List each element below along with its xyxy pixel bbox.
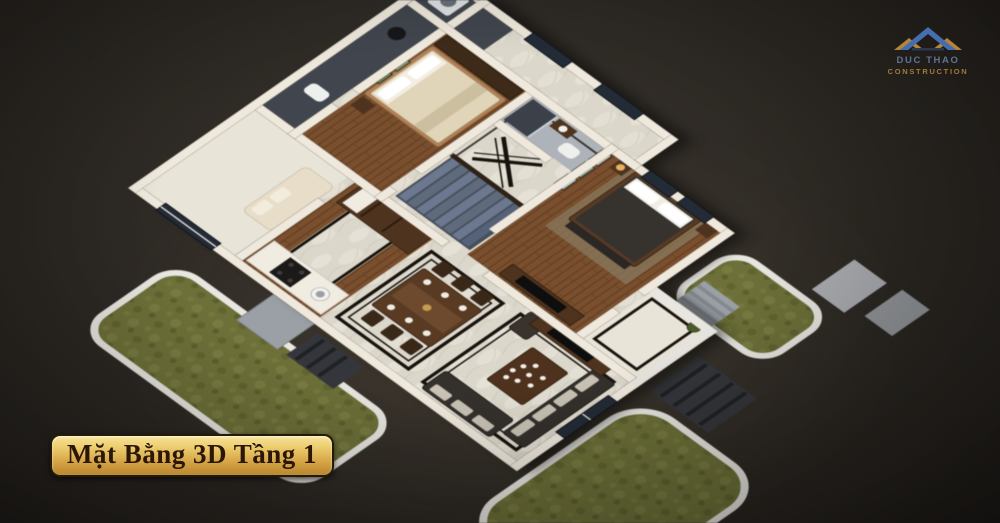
floor-plan-render: Mặt Bằng 3D Tầng 1 DUC THAO CONSTRUCTION (0, 0, 1000, 523)
floor-label-text: Mặt Bằng 3D Tầng 1 (67, 439, 317, 469)
logo-company-name: DUC THAO (878, 55, 978, 66)
floor-label-badge: Mặt Bằng 3D Tầng 1 (50, 434, 334, 477)
roof-logo-icon (892, 24, 964, 54)
brand-logo: DUC THAO CONSTRUCTION (878, 24, 978, 76)
logo-company-tagline: CONSTRUCTION (878, 67, 978, 76)
roof-base (912, 48, 944, 51)
